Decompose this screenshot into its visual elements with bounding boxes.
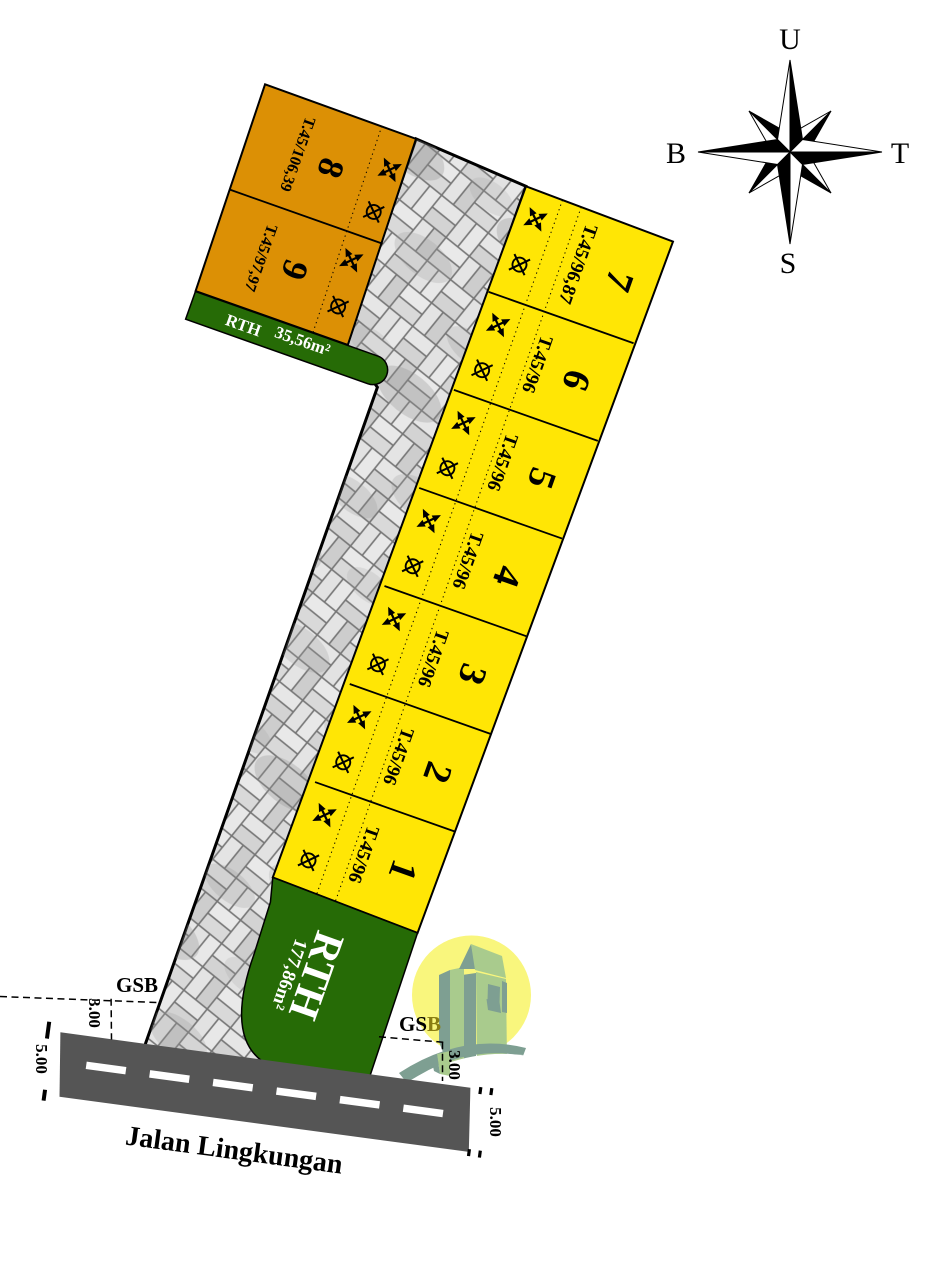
svg-text:3.00: 3.00 (445, 1050, 464, 1080)
svg-text:GSB: GSB (399, 1012, 441, 1036)
svg-text:B: B (666, 137, 686, 170)
svg-text:GSB: GSB (116, 973, 158, 997)
svg-text:3.00: 3.00 (85, 998, 104, 1028)
svg-text:U: U (779, 23, 801, 56)
svg-text:S: S (780, 247, 797, 280)
svg-text:T: T (891, 137, 909, 170)
svg-text:5.00: 5.00 (486, 1107, 505, 1137)
svg-text:5.00: 5.00 (32, 1044, 51, 1074)
